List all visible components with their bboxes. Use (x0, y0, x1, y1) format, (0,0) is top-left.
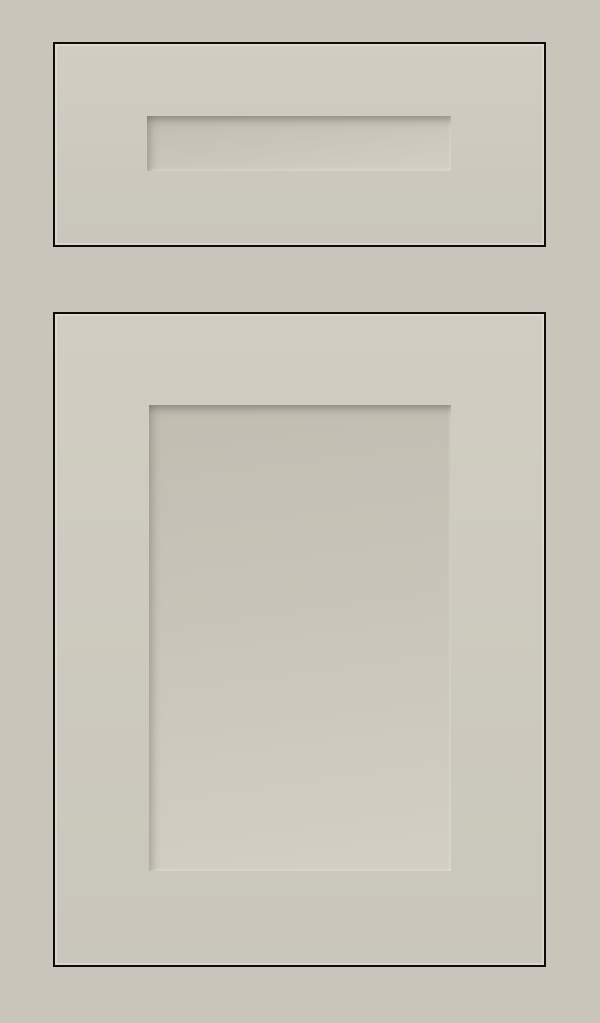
door-center-panel (149, 405, 451, 871)
cabinet-door (53, 312, 546, 967)
drawer-center-panel (147, 116, 451, 171)
drawer-front (53, 42, 546, 247)
cabinet-sample-image (0, 0, 600, 1023)
